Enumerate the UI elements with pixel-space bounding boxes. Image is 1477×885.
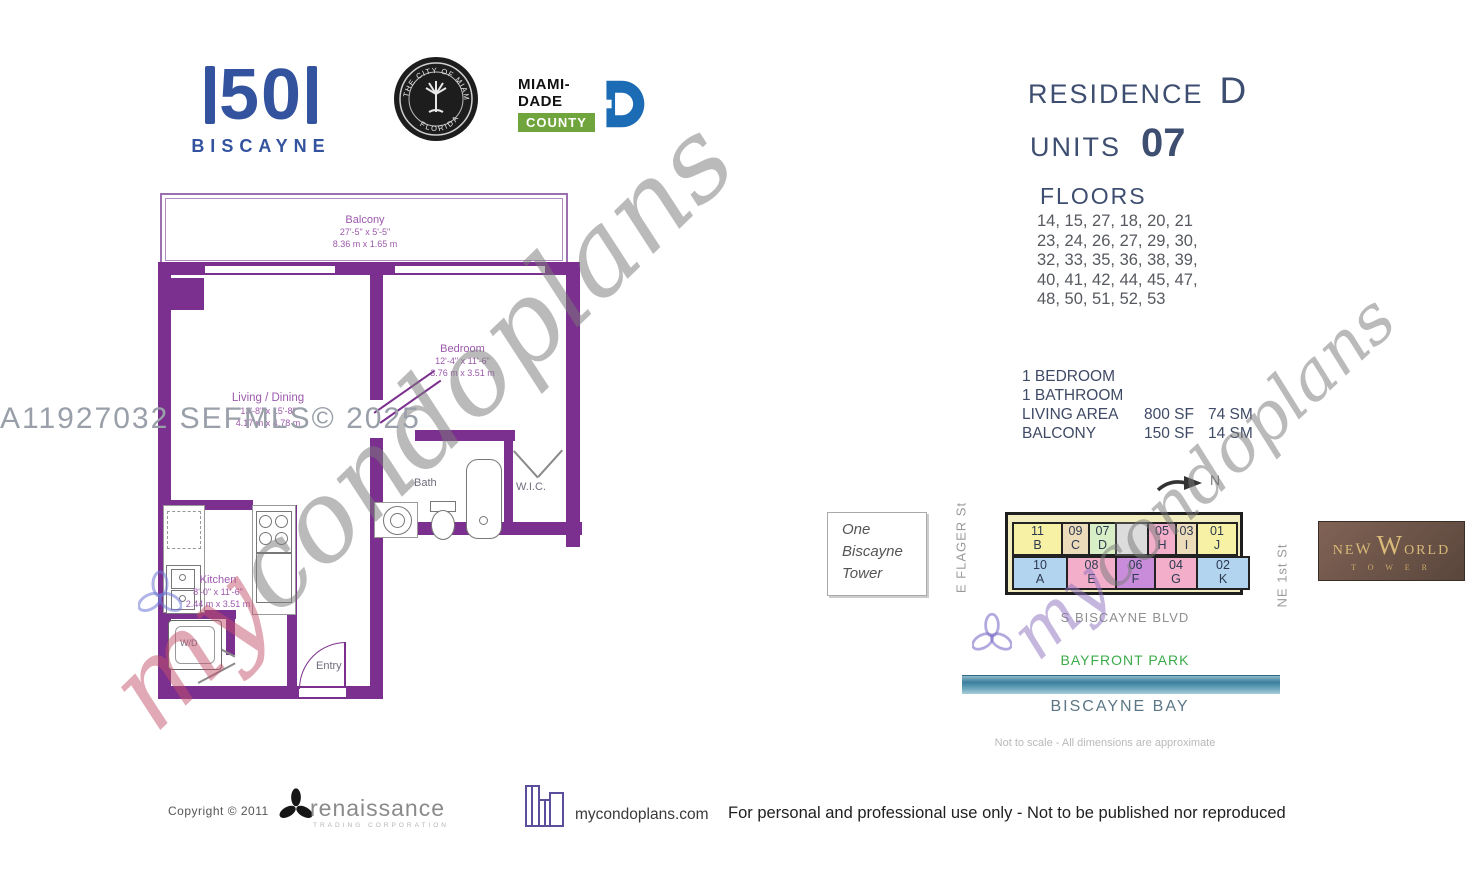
- copyright-text: Copyright © 2011: [168, 804, 269, 818]
- balcony-area-sm: 14 SM: [1208, 424, 1253, 443]
- trefoil-watermark: [972, 612, 1012, 660]
- residence-row: RESIDENCE D: [1028, 70, 1246, 112]
- entry-door-leaf: [344, 642, 346, 688]
- floorplan-drawing: Balcony 27'-5" x 5'-5" 8.36 m x 1.65 m B…: [0, 0, 760, 780]
- floors-list: 14, 15, 27, 18, 20, 21 23, 24, 26, 27, 2…: [1037, 212, 1198, 310]
- floors-line: 48, 50, 51, 52, 53: [1037, 290, 1198, 310]
- unit-cell-04G: 04G: [1154, 556, 1198, 590]
- closet-door-line: [513, 450, 538, 478]
- burner: [259, 515, 272, 528]
- wall-segment: [504, 436, 513, 528]
- living-area-sf: 800 SF: [1144, 405, 1208, 424]
- bathtub-drain: [479, 516, 488, 525]
- key-plan-top-row: 11B 09C 07D 05H 03I 01J: [1012, 522, 1238, 556]
- balcony-area-label: BALCONY: [1022, 424, 1144, 443]
- unit-cell-02K: 02K: [1196, 556, 1250, 590]
- floorplan-sheet: 50 BISCAYNE THE CITY OF MIAMI FLORIDA: [0, 0, 1477, 885]
- residence-label: RESIDENCE: [1028, 79, 1204, 110]
- living-area-label: LIVING AREA: [1022, 405, 1144, 424]
- unit-summary: 1 BEDROOM 1 BATHROOM LIVING AREA 800 SF …: [1022, 367, 1253, 443]
- core-cell: [1115, 522, 1149, 556]
- toilet-bowl: [431, 510, 455, 540]
- bath-sink-inner: [390, 513, 405, 528]
- living-area-sm: 74 SM: [1208, 405, 1253, 424]
- scale-note: Not to scale - All dimensions are approx…: [960, 737, 1250, 749]
- unit-cell-07D: 07D: [1088, 522, 1117, 556]
- mls-watermark: A11927032 SEFMLS© 2025: [0, 402, 421, 436]
- renaissance-logo-text: renaissance: [310, 795, 445, 822]
- wall-segment: [370, 530, 383, 699]
- north-label: N: [1210, 472, 1220, 488]
- new-world-tower-sign: NEW WORLD T O W E R: [1318, 521, 1465, 581]
- unit-cell-09C: 09C: [1061, 522, 1090, 556]
- units-value: 07: [1141, 121, 1186, 166]
- one-biscayne-tower-box: One Biscayne Tower: [827, 512, 927, 596]
- biscayne-blvd-label: S BISCAYNE BLVD: [1005, 610, 1245, 625]
- burner: [275, 515, 288, 528]
- floors-line: 14, 15, 27, 18, 20, 21: [1037, 212, 1198, 232]
- unit-cell-11B: 11B: [1012, 522, 1063, 556]
- wall-segment: [158, 686, 383, 699]
- bathroom-count: 1 BATHROOM: [1022, 386, 1253, 405]
- site-url: mycondoplans.com: [575, 806, 709, 824]
- unit-cell-05H: 05H: [1147, 522, 1177, 556]
- units-label: UNITS: [1030, 132, 1121, 163]
- floors-line: 40, 41, 42, 44, 45, 47,: [1037, 271, 1198, 291]
- door-opening: [299, 688, 346, 697]
- burner: [275, 532, 288, 545]
- living-area-row: LIVING AREA 800 SF 74 SM: [1022, 405, 1253, 424]
- unit-cell-10A: 10A: [1012, 556, 1068, 590]
- bedroom-label: Bedroom 12'-4" x 11'-6" 3.76 m x 3.51 m: [390, 342, 535, 380]
- bayfront-park-label: BAYFRONT PARK: [1005, 652, 1245, 668]
- balcony-area-sf: 150 SF: [1144, 424, 1208, 443]
- renaissance-sub-text: TRADING CORPORATION: [313, 822, 449, 829]
- window: [205, 265, 335, 274]
- north-arrow-icon: [1156, 474, 1208, 494]
- closet-door-line: [537, 449, 562, 477]
- bath-label: Bath: [414, 477, 437, 489]
- wall-segment: [415, 430, 515, 441]
- wic-label: W.I.C.: [516, 481, 546, 493]
- window: [395, 265, 545, 274]
- trefoil-watermark: [138, 570, 182, 622]
- wd-label: W/D: [180, 638, 198, 648]
- wall-pillar: [158, 278, 204, 310]
- unit-cell-03I: 03I: [1175, 522, 1198, 556]
- building-key-plan: 11B 09C 07D 05H 03I 01J 10A 08E 06F 04G …: [1005, 512, 1243, 595]
- unit-cell-06F: 06F: [1115, 556, 1156, 590]
- entry-label: Entry: [316, 660, 342, 672]
- unit-cell-08E: 08E: [1066, 556, 1117, 590]
- wall-segment: [370, 262, 383, 400]
- bedroom-count: 1 BEDROOM: [1022, 367, 1253, 386]
- residence-value: D: [1220, 70, 1247, 112]
- burner: [259, 532, 272, 545]
- wall-segment: [226, 610, 235, 655]
- floors-line: 32, 33, 35, 36, 38, 39,: [1037, 251, 1198, 271]
- street-label-left: E FLAGER St: [954, 493, 969, 603]
- mycondoplans-buildings-icon: [524, 784, 566, 828]
- disclaimer-text: For personal and professional use only -…: [728, 804, 1286, 823]
- unit-cell-01J: 01J: [1196, 522, 1238, 556]
- balcony-area-row: BALCONY 150 SF 14 SM: [1022, 424, 1253, 443]
- biscayne-bay-label: BISCAYNE BAY: [1000, 698, 1240, 716]
- pantry-dashed: [167, 511, 201, 549]
- floors-label: FLOORS: [1040, 183, 1147, 210]
- key-plan-bottom-row: 10A 08E 06F 04G 02K: [1012, 556, 1250, 590]
- wall-segment: [566, 262, 580, 547]
- units-row: UNITS 07: [1030, 121, 1186, 166]
- balcony-label: Balcony 27'-5" x 5'-5" 8.36 m x 1.65 m: [285, 213, 445, 251]
- bathtub: [466, 459, 502, 539]
- water-bar: [962, 675, 1280, 694]
- street-label-right: NE 1st St: [1275, 526, 1290, 626]
- floors-line: 23, 24, 26, 27, 29, 30,: [1037, 232, 1198, 252]
